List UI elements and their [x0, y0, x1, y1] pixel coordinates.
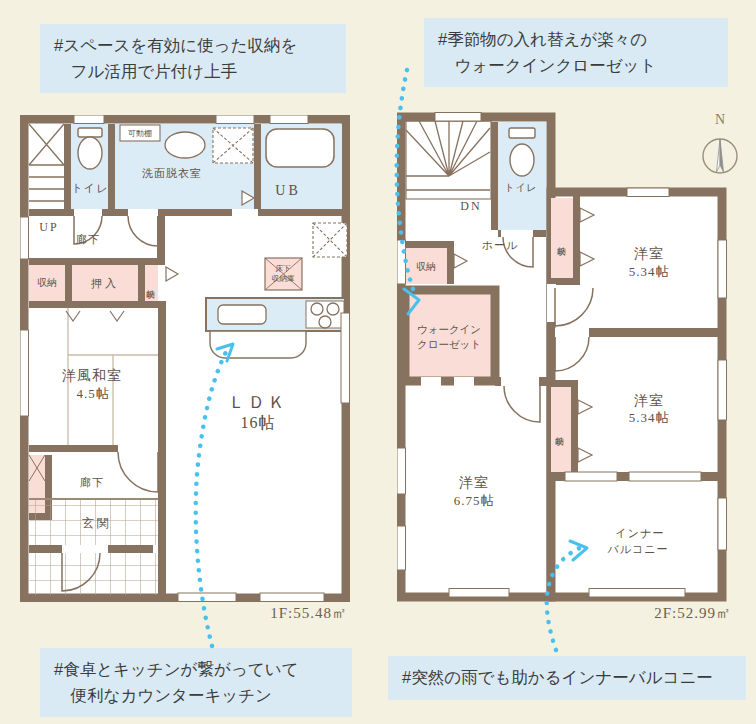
floor2-area-label: 2F:52.99㎡: [556, 604, 732, 623]
room-label-bedroom2: 洋室: [634, 392, 664, 410]
callout-storage-line2: フル活用で片付け上手: [54, 59, 332, 85]
room-label-hallway-upper: 廊下: [76, 232, 100, 247]
room-label-ldk: ＬＤＫ: [228, 391, 288, 414]
floor2-plan: DN トイレ ホール 収納 収納 洋室 5.34帖 ウォークイン クローゼット …: [397, 112, 727, 604]
callout-closet-line2: ウォークインクローゼット: [438, 53, 714, 79]
callout-balcony: #突然の雨でも助かるインナーバルコニー: [388, 656, 746, 700]
room-label-floor-storage-1: 床下: [276, 264, 291, 274]
room-label-movable-shelf: 可動棚: [128, 128, 152, 139]
compass-north-label: N: [695, 112, 745, 128]
callout-closet-line1: #季節物の入れ替えが楽々の: [438, 30, 647, 48]
room-label-washroom: 洗面脱衣室: [142, 166, 202, 181]
compass-icon: [695, 128, 745, 184]
floor1-area-label: 1F:55.48㎡: [180, 604, 348, 623]
room-label-hallway-lower: 廊下: [80, 475, 104, 490]
room-label-washitsu-size: 4.5帖: [76, 385, 109, 403]
floor2-walls-and-fixtures: [397, 112, 727, 604]
room-label-bedroom3: 洋室: [459, 474, 489, 492]
room-label-ldk-size: 16帖: [241, 413, 276, 434]
room-label-storage-hall: 収納: [416, 260, 436, 274]
room-label-stairs-down: DN: [460, 199, 481, 214]
room-label-unit-bath: UB: [275, 183, 300, 199]
callout-storage: #スペースを有効に使った収納を フル活用で片付け上手: [40, 24, 346, 93]
room-label-bedroom1: 洋室: [634, 245, 664, 263]
room-label-wic-line2: クローゼット: [417, 338, 481, 352]
compass: N: [695, 112, 745, 188]
callout-storage-line1: #スペースを有効に使った収納を: [54, 36, 297, 54]
callout-kitchen-line2: 便利なカウンターキッチン: [54, 683, 338, 709]
room-label-balcony-line1: インナー: [616, 526, 665, 541]
room-label-toilet-2f: トイレ: [504, 181, 538, 195]
room-label-oshiire: 押入: [91, 276, 119, 291]
room-label-storage-a-1f: 収納: [37, 276, 57, 290]
room-label-wic-line1: ウォークイン: [417, 323, 481, 337]
room-label-bedroom3-size: 6.75帖: [454, 492, 495, 510]
room-label-bedroom2-size: 5.34帖: [629, 409, 670, 427]
room-label-toilet-1f: トイレ: [72, 181, 109, 196]
floor1-plan: トイレ 可動棚 洗面脱衣室 UB UP 廊下 収納 押入 収納 洋風和室 4.5…: [20, 115, 350, 602]
callout-kitchen-line1: #食卓とキッチンが繋がっていて: [54, 660, 298, 678]
callout-closet: #季節物の入れ替えが楽々の ウォークインクローゼット: [424, 18, 728, 87]
room-label-floor-storage-2: 収納庫: [272, 274, 295, 284]
callout-kitchen: #食卓とキッチンが繋がっていて 便利なカウンターキッチン: [40, 648, 352, 717]
room-label-entrance: 玄関: [82, 515, 112, 532]
room-label-balcony-line2: バルコニー: [607, 542, 668, 557]
floorplan-page: #スペースを有効に使った収納を フル活用で片付け上手 #季節物の入れ替えが楽々の…: [0, 0, 756, 724]
room-label-hall: ホール: [482, 238, 519, 253]
callout-balcony-line1: #突然の雨でも助かるインナーバルコニー: [402, 668, 713, 686]
room-label-bedroom1-size: 5.34帖: [629, 263, 670, 281]
room-label-washitsu: 洋風和室: [62, 367, 122, 385]
room-label-stairs-up: UP: [39, 220, 58, 235]
